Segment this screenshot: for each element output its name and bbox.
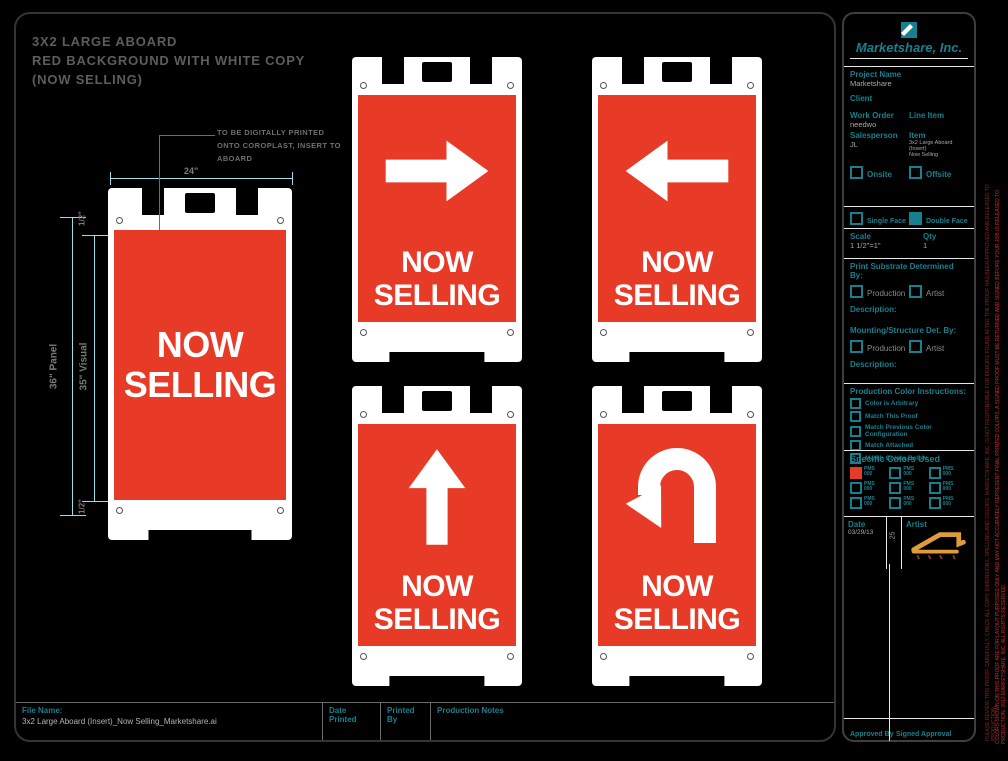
dim-tick	[82, 235, 108, 236]
substrate-production-label: Production	[867, 289, 905, 298]
arrow-right-icon	[377, 133, 497, 209]
sign-panel: NOW SELLING	[358, 424, 516, 646]
print-note: TO BE DIGITALLY PRINTED ONTO COROPLAST, …	[217, 126, 341, 165]
arrow-uturn-icon	[625, 447, 729, 547]
pms-swatch[interactable]	[889, 482, 901, 494]
frame-notch	[622, 386, 644, 413]
logo-icon	[901, 22, 917, 38]
pms-label: PMS 000	[903, 497, 917, 507]
screw-hole-icon	[360, 653, 367, 660]
screw-hole-icon	[747, 82, 754, 89]
sign-text-line1: NOW	[598, 246, 756, 279]
frame-notch	[382, 386, 404, 413]
dim-line	[72, 217, 73, 515]
sign-text-line2: SELLING	[598, 279, 756, 312]
work-order-label: Work Order	[850, 111, 909, 120]
substrate-artist-label: Artist	[926, 289, 944, 298]
frame-notch	[382, 57, 404, 84]
artist-label: Artist	[906, 520, 972, 529]
frame-notch	[710, 57, 732, 84]
pms-swatch[interactable]	[929, 467, 941, 479]
screw-hole-icon	[360, 82, 367, 89]
sign-panel: NOW SELLING	[114, 230, 286, 500]
substrate-description-label: Description:	[850, 305, 968, 314]
project-name-value: Marketshare	[850, 79, 968, 88]
screw-hole-icon	[747, 653, 754, 660]
qty-label: Qty	[923, 232, 968, 241]
print-substrate-section: Print Substrate Determined By: Productio…	[844, 258, 974, 318]
pms-label: PMS 000	[864, 497, 878, 507]
qty-value: 1	[923, 241, 968, 250]
foot-notch	[389, 676, 484, 686]
double-face-label: Double Face	[926, 218, 968, 225]
proof-sheet: 3X2 LARGE ABOARD RED BACKGROUND WITH WHI…	[0, 0, 1008, 761]
arrow-left-icon	[617, 133, 737, 209]
pms-swatch[interactable]	[889, 497, 901, 509]
client-label: Client	[850, 94, 968, 103]
color-instructions-section: Production Color Instructions: Color is …	[844, 383, 974, 450]
handle-cutout-icon	[185, 193, 215, 213]
sign-panel: NOW SELLING	[598, 95, 756, 322]
match-previous-checkbox[interactable]	[850, 426, 861, 437]
mounting-label: Mounting/Structure Det. By:	[850, 326, 968, 335]
substrate-artist-checkbox[interactable]	[909, 285, 922, 298]
color-option-label: Match Attached	[865, 442, 913, 449]
handle-cutout-icon	[422, 391, 452, 411]
scale-note: .25	[889, 532, 896, 542]
sign-text-line2: SELLING	[598, 603, 756, 636]
offsite-label: Offsite	[926, 170, 951, 179]
scale-qty-section: Scale 1 1/2"=1" Qty 1	[844, 228, 974, 258]
sign-text-line2: SELLING	[114, 365, 286, 405]
mounting-section: Mounting/Structure Det. By: Production A…	[844, 318, 974, 383]
info-sidebar: Marketshare, Inc. Project Name Marketsha…	[842, 12, 976, 742]
file-name-value: 3x2 Large Aboard (Insert)_Now Selling_Ma…	[22, 717, 316, 726]
sign-text-line2: SELLING	[358, 603, 516, 636]
screw-hole-icon	[600, 329, 607, 336]
mounting-production-checkbox[interactable]	[850, 340, 863, 353]
pms-label: PMS 000	[943, 467, 957, 477]
frame-notch	[622, 57, 644, 84]
title-line-2: RED BACKGROUND WITH WHITE COPY	[32, 51, 305, 70]
dim-line	[110, 178, 292, 179]
aframe-sign-arrow-uturn: NOW SELLING	[592, 386, 762, 686]
onsite-checkbox[interactable]	[850, 166, 863, 179]
pms-swatch-red[interactable]	[850, 467, 862, 479]
mounting-artist-checkbox[interactable]	[909, 340, 922, 353]
sign-frame-top	[352, 386, 522, 424]
screw-hole-icon	[747, 329, 754, 336]
signed-approval-label: Signed Approval	[896, 731, 951, 738]
screw-hole-icon	[507, 329, 514, 336]
print-substrate-label: Print Substrate Determined By:	[850, 262, 968, 280]
date-printed-label: Date Printed	[329, 706, 374, 724]
artist-signature	[906, 529, 972, 561]
mounting-production-label: Production	[867, 344, 905, 353]
sign-frame-top	[592, 57, 762, 95]
sign-frame-bottom	[352, 322, 522, 362]
aframe-sign-arrow-right: NOW SELLING	[352, 57, 522, 362]
project-info-section: Project Name Marketshare Client Work Ord…	[844, 66, 974, 206]
onsite-label: Onsite	[867, 170, 892, 179]
color-option-label: Color is Arbitrary	[865, 400, 918, 407]
production-notes-cell: Production Notes	[430, 703, 834, 740]
screw-hole-icon	[747, 411, 754, 418]
screw-hole-icon	[360, 329, 367, 336]
sign-frame-top	[352, 57, 522, 95]
pms-swatch[interactable]	[929, 482, 941, 494]
aframe-sign-front: NOW SELLING	[108, 188, 292, 540]
work-order-value: needwo	[850, 120, 909, 129]
item-value-line2: Now Selling	[909, 152, 968, 158]
frame-notch	[470, 386, 492, 413]
single-face-checkbox[interactable]	[850, 212, 863, 225]
pms-label: PMS 000	[864, 482, 878, 492]
mounting-description-label: Description:	[850, 360, 968, 369]
item-value-line1: 3x2 Large Aboard (Insert)	[909, 140, 968, 152]
double-face-checkbox[interactable]	[909, 212, 922, 225]
color-option-label: Match Previous Color Configuration	[865, 424, 968, 438]
dim-tick	[110, 172, 111, 185]
project-name-label: Project Name	[850, 70, 968, 79]
specific-colors-label: Specific Colors Used	[850, 454, 968, 464]
page-title: 3X2 LARGE ABOARD RED BACKGROUND WITH WHI…	[32, 32, 305, 89]
foot-notch	[629, 676, 724, 686]
signature-area[interactable]	[844, 564, 974, 718]
print-note-line: ONTO COROPLAST, INSERT TO	[217, 139, 341, 152]
approved-by-label: Approved By	[850, 731, 894, 738]
dim-visual-label: 35" Visual	[79, 327, 90, 407]
logo-section: Marketshare, Inc.	[844, 14, 974, 66]
screw-hole-icon	[277, 217, 284, 224]
handle-cutout-icon	[662, 391, 692, 411]
match-this-proof-checkbox[interactable]	[850, 411, 861, 422]
sign-text-line1: NOW	[358, 246, 516, 279]
sign-frame-top	[108, 188, 292, 230]
screw-hole-icon	[600, 82, 607, 89]
offsite-checkbox[interactable]	[909, 166, 922, 179]
sign-text-line1: NOW	[358, 570, 516, 603]
dim-panel-label: 36" Panel	[49, 327, 60, 407]
screw-hole-icon	[507, 411, 514, 418]
edge-disclaimer-2: COLORS SHOWN ON THIS PROOF ARE FOR LAYOU…	[995, 178, 1007, 744]
printed-by-cell: Printed By	[380, 703, 430, 740]
pms-swatch[interactable]	[889, 467, 901, 479]
sign-frame-bottom	[352, 646, 522, 686]
dim-tick	[292, 172, 293, 185]
date-label: Date	[848, 520, 882, 529]
sign-frame-top	[592, 386, 762, 424]
screw-hole-icon	[600, 411, 607, 418]
footer-bar: File Name: 3x2 Large Aboard (Insert)_Now…	[16, 702, 834, 740]
color-arbitrary-checkbox[interactable]	[850, 398, 861, 409]
mounting-artist-label: Artist	[926, 344, 944, 353]
pms-label: PMS 000	[943, 482, 957, 492]
single-face-label: Single Face	[867, 218, 906, 225]
handle-cutout-icon	[422, 62, 452, 82]
arrow-up-icon	[399, 444, 475, 550]
pms-label: PMS 000	[943, 497, 957, 507]
date-artist-section: Date 03/29/13 .25 Artist	[844, 516, 974, 564]
sign-panel: NOW SELLING	[358, 95, 516, 322]
drawing-area: 3X2 LARGE ABOARD RED BACKGROUND WITH WHI…	[14, 12, 836, 742]
sign-text-line1: NOW	[114, 325, 286, 365]
pms-label: PMS 000	[903, 482, 917, 492]
color-instructions-label: Production Color Instructions:	[850, 387, 968, 396]
date-value: 03/29/13	[848, 529, 882, 536]
frame-notch	[142, 188, 164, 215]
sign-frame-bottom	[592, 322, 762, 362]
title-line-1: 3X2 LARGE ABOARD	[32, 32, 305, 51]
approval-section: Approved By Signed Approval	[844, 718, 974, 740]
screw-hole-icon	[507, 653, 514, 660]
dim-width-label: 24"	[184, 166, 198, 176]
pms-swatch[interactable]	[850, 497, 862, 509]
signature-divider	[889, 564, 890, 718]
pms-swatch[interactable]	[850, 482, 862, 494]
foot-notch	[389, 352, 484, 362]
handle-cutout-icon	[662, 62, 692, 82]
production-notes-label: Production Notes	[437, 706, 828, 715]
item-label: Item	[909, 131, 968, 140]
specific-colors-section: Specific Colors Used PMS 000 PMS 000 PMS…	[844, 450, 974, 516]
screw-hole-icon	[600, 653, 607, 660]
title-line-3: (NOW SELLING)	[32, 70, 305, 89]
dim-half-bottom-label: 1/2"	[78, 495, 87, 519]
salesperson-value: JL	[850, 140, 909, 149]
date-printed-cell: Date Printed	[322, 703, 380, 740]
sign-panel: NOW SELLING	[598, 424, 756, 646]
dim-half-top-label: 1/2"	[78, 207, 87, 231]
print-note-line: TO BE DIGITALLY PRINTED	[217, 126, 341, 139]
screw-hole-icon	[507, 82, 514, 89]
sign-text-line2: SELLING	[358, 279, 516, 312]
foot-notch	[629, 352, 724, 362]
file-name-cell: File Name: 3x2 Large Aboard (Insert)_Now…	[16, 703, 322, 740]
sign-frame-bottom	[108, 500, 292, 540]
printed-by-label: Printed By	[387, 706, 424, 724]
foot-notch	[148, 530, 251, 540]
pms-label: PMS 000	[864, 467, 878, 477]
file-name-label: File Name:	[22, 706, 316, 715]
face-section: Single Face Double Face	[844, 206, 974, 228]
screw-hole-icon	[360, 411, 367, 418]
frame-notch	[236, 188, 258, 215]
scale-value: 1 1/2"=1"	[850, 241, 895, 250]
color-option-label: Match This Proof	[865, 413, 918, 420]
leader-line	[159, 135, 215, 136]
sign-text-line1: NOW	[598, 570, 756, 603]
frame-notch	[470, 57, 492, 84]
aframe-sign-arrow-up: NOW SELLING	[352, 386, 522, 686]
sign-frame-bottom	[592, 646, 762, 686]
substrate-production-checkbox[interactable]	[850, 285, 863, 298]
aframe-sign-arrow-left: NOW SELLING	[592, 57, 762, 362]
salesperson-label: Salesperson	[850, 131, 909, 140]
line-item-label: Line Item	[909, 111, 968, 120]
print-note-line: ABOARD	[217, 152, 341, 165]
pms-swatch[interactable]	[929, 497, 941, 509]
dim-line	[94, 235, 95, 501]
screw-hole-icon	[116, 507, 123, 514]
screw-hole-icon	[116, 217, 123, 224]
leader-line	[159, 135, 160, 245]
pms-label: PMS 000	[903, 467, 917, 477]
screw-hole-icon	[277, 507, 284, 514]
company-name: Marketshare, Inc.	[856, 40, 962, 55]
scale-label: Scale	[850, 232, 895, 241]
frame-notch	[710, 386, 732, 413]
